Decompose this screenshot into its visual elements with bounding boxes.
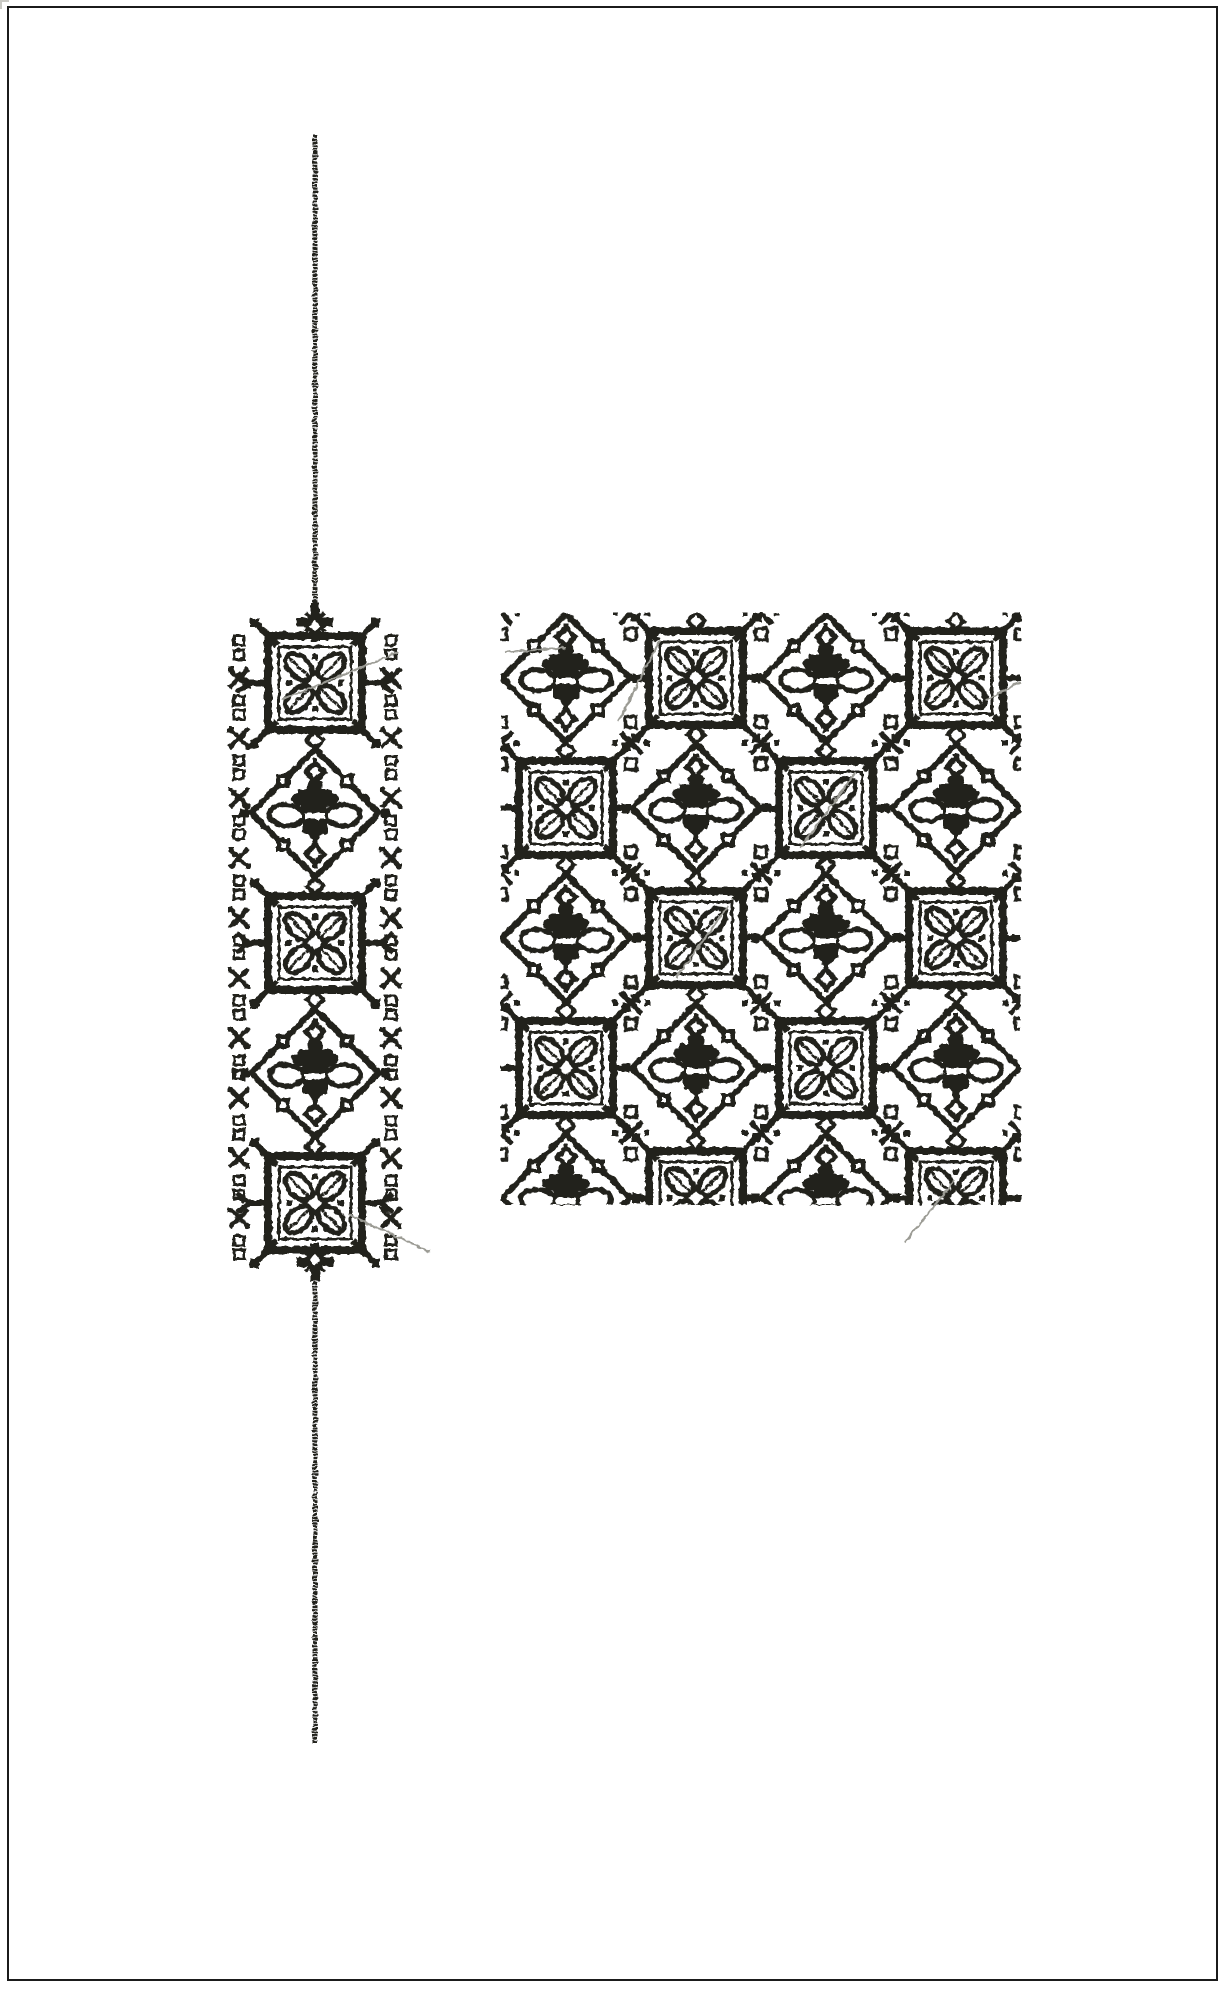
corner-cluster [872, 847, 910, 900]
band-edge-mark [228, 787, 250, 809]
flower-motif [501, 1003, 631, 1134]
flower-motif [761, 1003, 891, 1134]
band-edge-mark [234, 816, 244, 839]
corner-cluster [872, 1237, 910, 1290]
corner-cluster [1002, 1107, 1040, 1160]
corner-cluster [742, 977, 780, 1030]
corner-cluster [1002, 1237, 1040, 1290]
flower-motif [891, 873, 1021, 1004]
band-edge-mark [380, 787, 402, 809]
corner-cluster [482, 717, 520, 770]
flower-motif [891, 613, 1021, 744]
corner-cluster [742, 1237, 780, 1290]
flower-motif [501, 743, 631, 874]
bee-motif [240, 749, 390, 877]
band-edge-mark [386, 996, 396, 1019]
bee-motif [240, 1009, 390, 1137]
bee-motif [881, 744, 1031, 872]
band-edge-mark [380, 727, 402, 749]
corner-cluster [612, 1107, 650, 1160]
bee-motif [491, 614, 641, 742]
band-edge-mark [234, 636, 244, 659]
border-band-pattern [228, 607, 402, 1277]
bee-motif [751, 1134, 901, 1262]
band-edge-mark [234, 696, 244, 719]
corner-cluster [482, 587, 520, 640]
band-edge-mark [380, 1087, 402, 1109]
band-edge-mark [386, 756, 396, 779]
band-edge-mark [228, 1087, 250, 1109]
band-edge-mark [380, 907, 402, 929]
band-edge-mark [386, 696, 396, 719]
band-edge-mark [234, 1236, 244, 1259]
corner-cluster [742, 847, 780, 900]
band-edge-mark [228, 1147, 250, 1169]
bee-motif [491, 874, 641, 1002]
bee-motif [491, 1134, 641, 1262]
flower-motif [631, 613, 761, 744]
band-edge-mark [234, 756, 244, 779]
band-edge-mark [234, 996, 244, 1019]
corner-cluster [612, 587, 650, 640]
band-edge-mark [234, 876, 244, 899]
corner-cluster [1002, 977, 1040, 1030]
corner-cluster [872, 1107, 910, 1160]
bee-motif [751, 614, 901, 742]
band-edge-mark [386, 1056, 396, 1079]
bee-motif [621, 744, 771, 872]
corner-cluster [482, 1107, 520, 1160]
flower-motif [631, 873, 761, 1004]
band-edge-mark [380, 1027, 402, 1049]
corner-cluster [612, 717, 650, 770]
corner-cluster [612, 847, 650, 900]
band-edge-mark [386, 876, 396, 899]
bee-motif [621, 1004, 771, 1132]
band-edge-mark [234, 1056, 244, 1079]
flower-motif [891, 1133, 1021, 1264]
band-edge-mark [228, 907, 250, 929]
band-edge-mark [386, 1116, 396, 1139]
corner-cluster [612, 977, 650, 1030]
corner-cluster [742, 1107, 780, 1160]
corner-cluster [1002, 717, 1040, 770]
flower-motif [761, 743, 891, 874]
corner-cluster [482, 977, 520, 1030]
band-edge-mark [380, 967, 402, 989]
band-edge-mark [380, 1147, 402, 1169]
band-edge-mark [386, 816, 396, 839]
band-edge-mark [228, 727, 250, 749]
band-edge-mark [234, 1116, 244, 1139]
corner-cluster [482, 847, 520, 900]
pattern-page [0, 0, 1224, 1989]
band-edge-mark [386, 1236, 396, 1259]
fill-swatch-pattern [482, 587, 1040, 1290]
band-edge-mark [228, 967, 250, 989]
corner-cluster [612, 1237, 650, 1290]
corner-cluster [742, 587, 780, 640]
corner-cluster [872, 717, 910, 770]
corner-cluster [872, 587, 910, 640]
corner-cluster [742, 717, 780, 770]
band-edge-mark [380, 847, 402, 869]
flower-motif [631, 1133, 761, 1264]
pattern-svg [0, 0, 1224, 1989]
bee-motif [881, 1004, 1031, 1132]
corner-cluster [1002, 847, 1040, 900]
corner-cluster [1002, 587, 1040, 640]
band-edge-mark [228, 1027, 250, 1049]
corner-cluster [482, 1237, 520, 1290]
corner-cluster [872, 977, 910, 1030]
bee-motif [751, 874, 901, 1002]
band-edge-mark [228, 847, 250, 869]
